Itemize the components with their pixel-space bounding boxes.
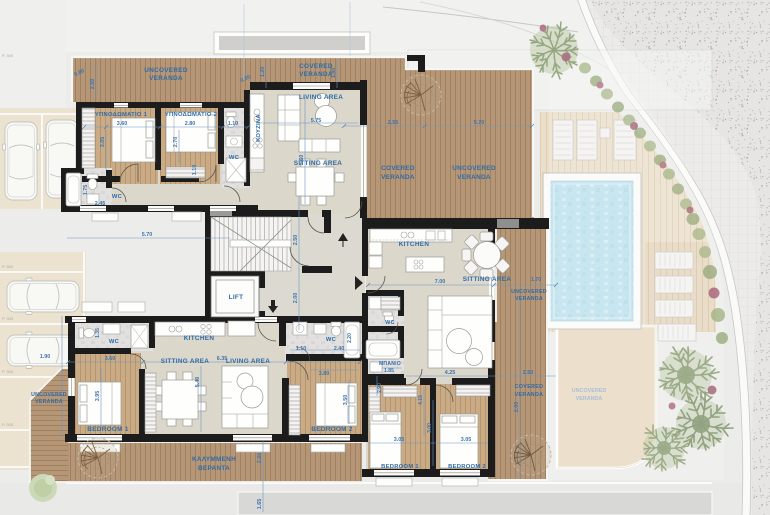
svg-text:3.80: 3.80	[319, 371, 330, 377]
svg-text:2.90: 2.90	[377, 383, 383, 393]
svg-text:3.50: 3.50	[343, 395, 349, 406]
svg-text:7.00: 7.00	[435, 279, 446, 285]
svg-text:ΒΕΡΑΝΤΑ: ΒΕΡΑΝΤΑ	[198, 465, 230, 472]
svg-text:VERANDA: VERANDA	[515, 392, 544, 398]
svg-text:5.75: 5.75	[311, 118, 322, 124]
svg-text:P. 303: P. 303	[2, 316, 14, 321]
svg-text:LIVING AREA: LIVING AREA	[299, 94, 343, 101]
svg-text:BEDROOM 1: BEDROOM 1	[381, 464, 419, 470]
svg-text:LIFT: LIFT	[229, 294, 244, 301]
svg-text:P. 304: P. 304	[2, 369, 14, 374]
svg-text:1.85: 1.85	[384, 368, 394, 374]
svg-text:WC: WC	[326, 337, 337, 343]
svg-text:4.25: 4.25	[445, 370, 456, 376]
svg-text:5.60: 5.60	[299, 155, 305, 166]
svg-text:VERANDA: VERANDA	[299, 71, 333, 78]
svg-text:P. 300: P. 300	[2, 53, 14, 58]
svg-text:KITCHEN: KITCHEN	[399, 241, 430, 248]
svg-text:1.90: 1.90	[40, 354, 51, 360]
svg-text:ΚΑΛΥΜΜΕΝΗ: ΚΑΛΥΜΜΕΝΗ	[192, 456, 236, 463]
svg-text:UNCOVERED: UNCOVERED	[31, 392, 67, 398]
svg-text:2.55: 2.55	[388, 120, 399, 126]
svg-text:P. 302: P. 302	[2, 264, 14, 269]
svg-text:2.80: 2.80	[185, 121, 196, 127]
svg-text:VERANDA: VERANDA	[515, 296, 543, 302]
svg-text:2.50: 2.50	[90, 79, 96, 90]
svg-text:3.05: 3.05	[461, 437, 472, 443]
svg-text:1.65: 1.65	[257, 499, 263, 510]
svg-text:VERANDA: VERANDA	[381, 174, 415, 181]
svg-text:VERANDA: VERANDA	[576, 396, 603, 402]
svg-text:3.60: 3.60	[105, 356, 116, 362]
svg-text:1.75: 1.75	[83, 185, 89, 196]
svg-text:UNCOVERED: UNCOVERED	[572, 388, 607, 394]
svg-text:5.70: 5.70	[474, 120, 485, 126]
svg-text:3.60: 3.60	[117, 121, 128, 127]
svg-text:VERANDA: VERANDA	[149, 75, 183, 82]
svg-text:2.50: 2.50	[293, 235, 299, 246]
svg-text:1.80: 1.80	[331, 68, 337, 79]
svg-text:SITTING AREA: SITTING AREA	[463, 276, 512, 283]
svg-text:VERANDA: VERANDA	[457, 174, 491, 181]
svg-text:COVERED: COVERED	[515, 384, 544, 390]
svg-text:KITCHEN: KITCHEN	[184, 335, 215, 342]
svg-text:UNCOVERED: UNCOVERED	[144, 67, 188, 74]
svg-text:P. 305: P. 305	[2, 422, 14, 427]
svg-text:BEDROOM 2: BEDROOM 2	[311, 426, 353, 433]
svg-text:2.20: 2.20	[347, 333, 353, 343]
svg-text:1.20: 1.20	[260, 67, 266, 78]
svg-text:WC: WC	[229, 155, 240, 161]
svg-text:UNCOVERED: UNCOVERED	[452, 165, 496, 172]
svg-text:COVERED: COVERED	[381, 165, 415, 172]
svg-text:1.10: 1.10	[228, 121, 239, 127]
svg-text:VERANDA: VERANDA	[35, 399, 63, 405]
svg-text:SITTING AREA: SITTING AREA	[161, 358, 210, 365]
svg-text:1.35: 1.35	[95, 328, 101, 338]
svg-text:2.45: 2.45	[95, 201, 106, 207]
svg-text:2.70: 2.70	[173, 137, 179, 148]
svg-text:LIVING AREA: LIVING AREA	[226, 358, 270, 365]
svg-text:UNCOVERED: UNCOVERED	[511, 289, 547, 295]
svg-text:2.40: 2.40	[334, 346, 345, 352]
svg-text:ΥΠΝΟΔΩΜΑΤΙΟ 2: ΥΠΝΟΔΩΜΑΤΙΟ 2	[165, 112, 217, 118]
svg-text:2.00: 2.00	[514, 402, 520, 413]
svg-text:ΜΠΑΝΙΟ: ΜΠΑΝΙΟ	[379, 361, 401, 367]
svg-text:WC: WC	[109, 339, 120, 345]
svg-text:WC: WC	[385, 320, 395, 326]
svg-text:6.35: 6.35	[217, 356, 228, 362]
svg-text:ΚΟΥΖΙΝΑ: ΚΟΥΖΙΝΑ	[256, 114, 262, 142]
svg-text:WC: WC	[112, 194, 123, 200]
svg-text:5.70: 5.70	[142, 232, 153, 238]
svg-text:BEDROOM 1: BEDROOM 1	[87, 426, 129, 433]
svg-text:2.00: 2.00	[257, 453, 263, 464]
svg-text:3.00: 3.00	[427, 423, 433, 433]
svg-text:4.15: 4.15	[418, 395, 424, 405]
svg-text:1.70: 1.70	[531, 277, 542, 283]
svg-text:1.10: 1.10	[296, 346, 307, 352]
svg-text:2.00: 2.00	[293, 293, 299, 304]
svg-text:BEDROOM 2: BEDROOM 2	[448, 464, 486, 470]
svg-text:COVERED: COVERED	[299, 63, 333, 70]
svg-text:3.95: 3.95	[95, 391, 101, 402]
svg-text:5.40: 5.40	[195, 377, 201, 388]
svg-text:3.05: 3.05	[394, 437, 405, 443]
svg-text:2.50: 2.50	[523, 370, 534, 376]
svg-text:3.05: 3.05	[100, 137, 106, 148]
svg-text:1.10: 1.10	[192, 165, 198, 176]
svg-text:ΥΠΝΟΔΩΜΑΤΙΟ 1: ΥΠΝΟΔΩΜΑΤΙΟ 1	[95, 112, 148, 118]
